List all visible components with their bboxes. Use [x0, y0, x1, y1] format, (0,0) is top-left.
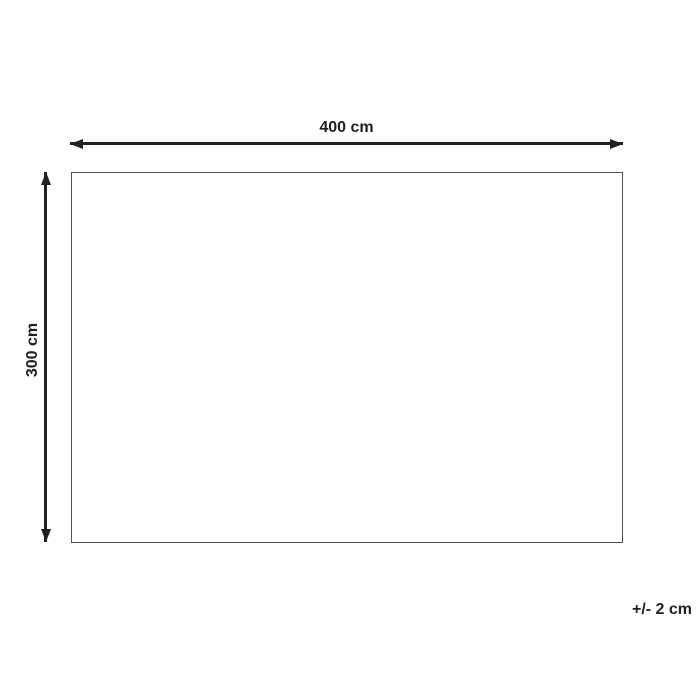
tolerance-label: +/- 2 cm	[632, 600, 692, 620]
height-dimension-label: 300 cm	[23, 323, 43, 377]
product-outline-rectangle	[71, 172, 623, 543]
height-double-arrow	[44, 172, 47, 542]
width-dimension-label: 400 cm	[70, 118, 623, 138]
width-double-arrow	[70, 142, 623, 145]
dimension-diagram: 400 cm 300 cm +/- 2 cm	[0, 0, 700, 700]
